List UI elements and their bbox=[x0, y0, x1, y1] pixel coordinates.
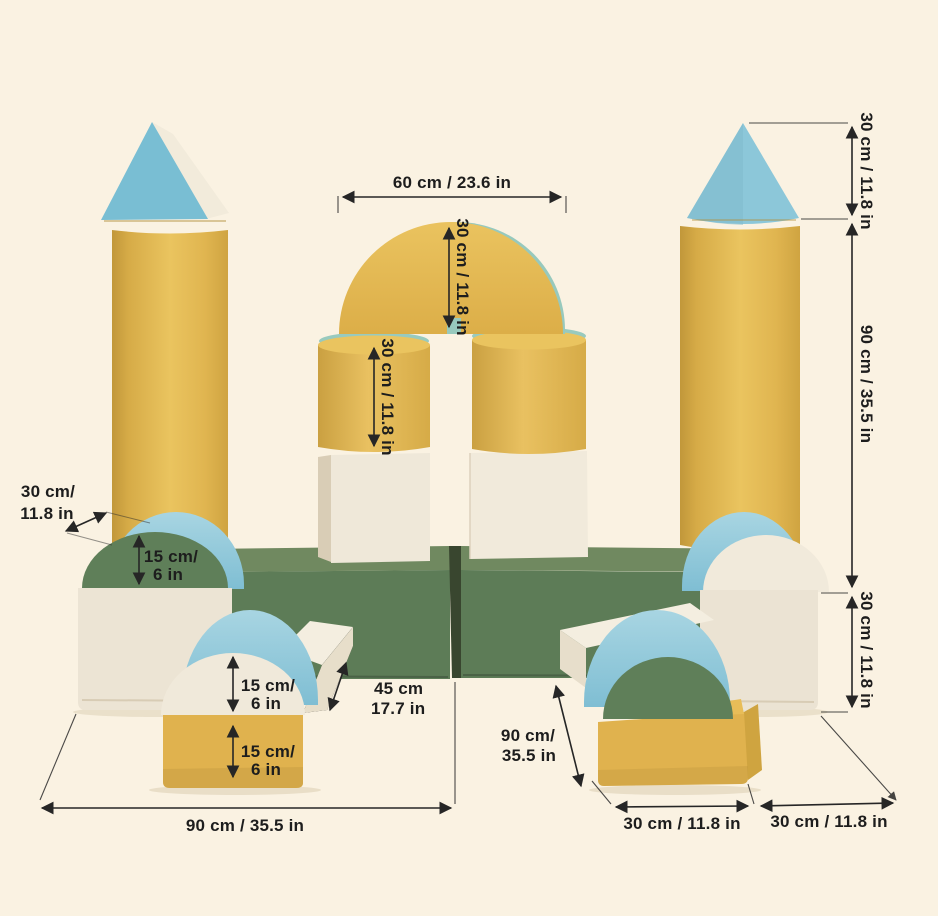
label-back-halfcyl-height-line2: 6 in bbox=[153, 565, 183, 584]
label-arch-width: 60 cm / 23.6 in bbox=[393, 173, 511, 192]
label-arch-height: 30 cm / 11.8 in bbox=[453, 218, 472, 335]
mid-cube-left bbox=[318, 453, 430, 563]
left-tower bbox=[101, 122, 229, 553]
bottom-width-left-dim-line bbox=[616, 806, 748, 807]
label-bottom-width-left: 30 cm / 11.8 in bbox=[623, 814, 740, 833]
label-front-block-height-line1: 15 cm/ bbox=[241, 742, 295, 761]
label-long-block-length-line1: 90 cm/ bbox=[501, 726, 555, 745]
label-right-cube-height: 30 cm / 11.8 in bbox=[857, 591, 876, 708]
front-right-shadow bbox=[589, 785, 761, 795]
mid-cube-right-front bbox=[470, 451, 588, 559]
mid-cube-right bbox=[470, 451, 588, 559]
left-tower-cylinder bbox=[112, 230, 228, 553]
mid-cube-left-side bbox=[318, 455, 331, 562]
mid-cylinder-right bbox=[472, 327, 586, 454]
label-long-block-length-line2: 35.5 in bbox=[502, 746, 556, 765]
label-mid-cylinder-height: 30 cm / 11.8 in bbox=[378, 338, 397, 455]
label-base-width: 90 cm / 35.5 in bbox=[186, 816, 304, 835]
soft-play-blocks-dimension-diagram: 60 cm / 23.6 in 30 cm / 11.8 in 30 cm / … bbox=[0, 0, 938, 916]
mid-cube-left-front bbox=[331, 453, 430, 563]
right-tower-cylinder bbox=[680, 226, 800, 551]
label-front-halfcyl-height-line1: 15 cm/ bbox=[241, 676, 295, 695]
label-block-depth-line1: 30 cm/ bbox=[21, 482, 75, 501]
label-front-block-height-line2: 6 in bbox=[251, 760, 281, 779]
label-step-depth-line2: 17.7 in bbox=[371, 699, 425, 718]
label-bottom-width-right: 30 cm / 11.8 in bbox=[770, 812, 887, 831]
diagram-canvas: 60 cm / 23.6 in 30 cm / 11.8 in 30 cm / … bbox=[0, 0, 938, 916]
label-tower-height: 90 cm / 35.5 in bbox=[857, 325, 876, 443]
label-block-depth-line2: 11.8 in bbox=[20, 504, 73, 523]
mid-cylinder-right-body bbox=[472, 340, 586, 454]
label-cone-height: 30 cm / 11.8 in bbox=[857, 112, 876, 229]
label-step-depth-line1: 45 cm bbox=[374, 679, 423, 698]
label-front-halfcyl-height-line2: 6 in bbox=[251, 694, 281, 713]
label-back-halfcyl-height-line1: 15 cm/ bbox=[144, 547, 198, 566]
